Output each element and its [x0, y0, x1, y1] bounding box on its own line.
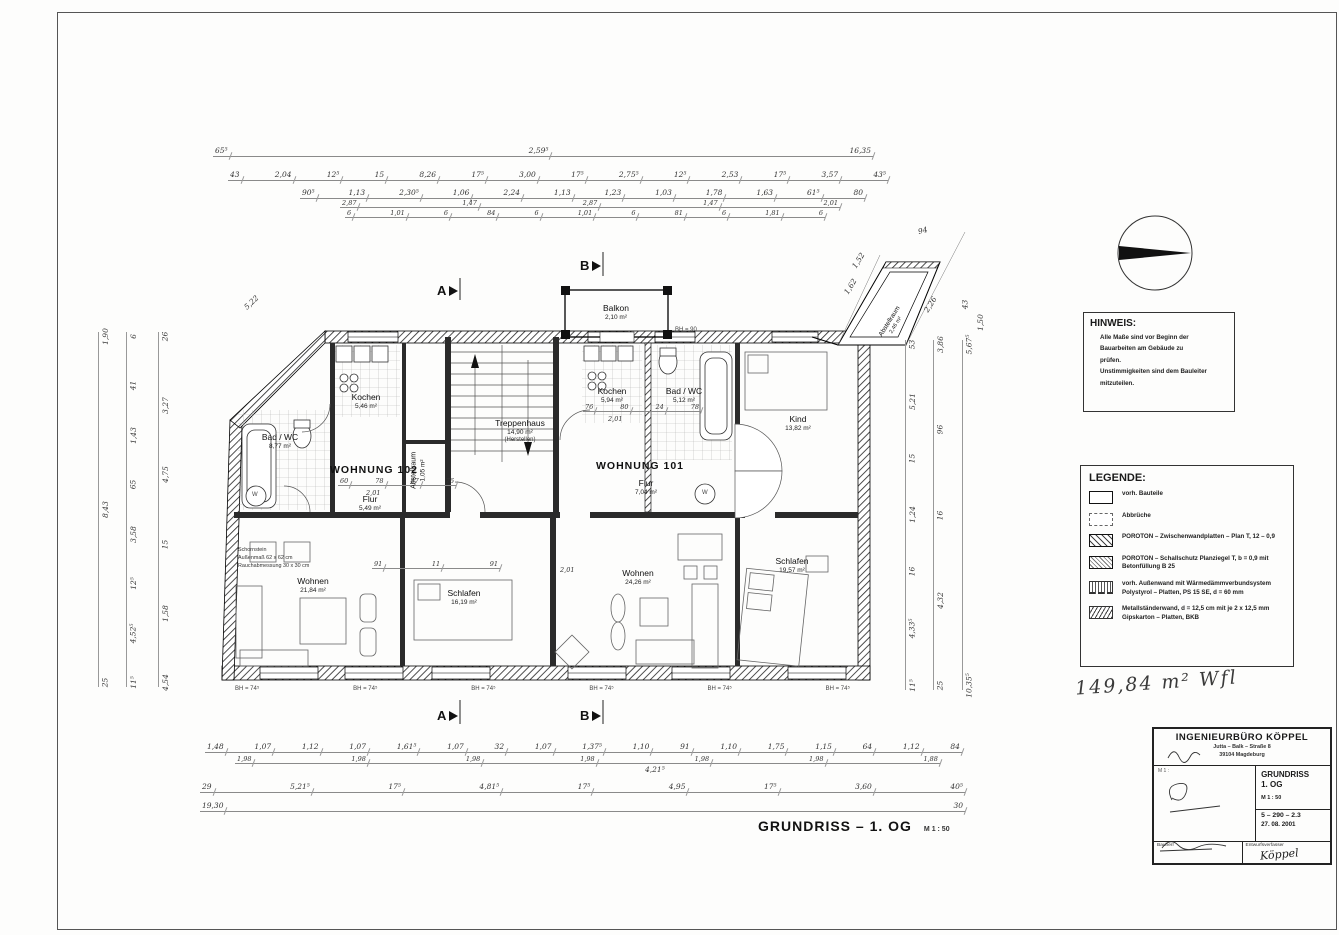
dimension-value: 11⁵ — [908, 679, 917, 692]
dimension-value: 1,01 — [576, 209, 594, 217]
chimney-note: Schornstein Außenmaß 62 x 62 cm Rauchabm… — [238, 546, 330, 570]
washer-label: W — [252, 492, 258, 498]
dimension-value: 1,23 — [603, 188, 624, 198]
dimension-value: 90⁵ — [300, 188, 317, 198]
dimension-value: 1,01 — [388, 209, 406, 217]
dimension-chain: 3,8696164,3225 — [933, 340, 946, 690]
dimension-value: 12⁵ — [129, 577, 138, 590]
dimension-chain: 911191 — [372, 560, 500, 569]
dimension-value: 1,15 — [813, 742, 834, 752]
dimension-value: 6 — [129, 334, 138, 339]
dimension-value: 1,07 — [252, 742, 273, 752]
dimension-value: 1,98 — [349, 755, 367, 763]
room-label-bad101: Bad / WC 5,12 m² — [652, 386, 716, 405]
dimension-value: 91 — [372, 560, 384, 568]
dimension-value: 17⁵ — [576, 782, 593, 792]
dimension-value: 1,61⁵ — [395, 742, 419, 752]
dimension-value: 1,07 — [445, 742, 466, 752]
dimension-value: 25 — [935, 681, 944, 691]
room-label-wohnen101: Wohnen 24,26 m² — [602, 568, 674, 587]
dimension-chain: 90⁵1,132,30⁵1,062,241,131,231,031,781,63… — [300, 188, 865, 199]
firm-name: INGENIEURBÜRO KÖPPEL — [1154, 732, 1330, 743]
washer-label: W — [702, 490, 708, 496]
dimension-value: 5,21⁵ — [288, 782, 312, 792]
dimension-value: 1,48 — [205, 742, 226, 752]
section-lines — [460, 252, 603, 724]
dimension-value: 15 — [907, 453, 916, 463]
dimension-value: 91 — [488, 560, 500, 568]
section-marker-b-bottom: B — [580, 708, 601, 723]
dimension-value: 1,13 — [552, 188, 573, 198]
entwurfsverfasser-signature-cell: Entwurfsverfasser Köppel — [1242, 842, 1331, 864]
dimension-value: 2,01 — [822, 199, 840, 207]
dimension-value: 65⁵ — [213, 146, 230, 156]
dimension-value: 1,98 — [807, 755, 825, 763]
dimension-value: 80 — [851, 188, 865, 198]
dimension-value: 2,87 — [340, 199, 358, 207]
drawing-scale: M 1 : 50 — [1261, 795, 1325, 801]
sill-height-labels: BH = 74⁵BH = 74⁵BH = 74⁵BH = 74⁵BH = 74⁵… — [235, 686, 850, 692]
dimension-value: 2,01 — [608, 415, 622, 423]
dimension-value: 2,30⁵ — [397, 188, 421, 198]
legend-label: POROTON – Schallschutz Planziegel T, b =… — [1122, 555, 1285, 573]
legend-list: vorh. BauteileAbbrüchePOROTON – Zwischen… — [1089, 490, 1285, 623]
dashed-rect-swatch — [1089, 513, 1113, 526]
diagonal-hatch-swatch — [1089, 534, 1113, 547]
dimension-value: 1,24 — [908, 507, 917, 524]
dimension-value: 84 — [948, 742, 962, 752]
dimension-value: BH = 74⁵ — [589, 686, 613, 692]
legend-item: POROTON – Zwischenwandplatten – Plan T, … — [1089, 533, 1285, 547]
dimension-value: 4,33⁵ — [908, 619, 917, 639]
dimension-value: 53 — [907, 340, 916, 350]
dimension-value: BH = 74⁵ — [826, 686, 850, 692]
zigzag-swatch — [1089, 606, 1113, 619]
dimension-value: 16,35 — [848, 146, 873, 156]
dimension-value: 1,03 — [653, 188, 674, 198]
dimension-value: 1,98 — [235, 755, 253, 763]
legend-item: vorh. Bauteile — [1089, 490, 1285, 504]
dimension-value: 17⁵ — [772, 170, 789, 180]
plan-title-text: GRUNDRISS – 1. OG — [758, 818, 912, 834]
dimension-value: 15 — [373, 170, 387, 180]
dimension-chain: 61,0168461,0168161,816 — [345, 209, 825, 218]
hinweis-box: HINWEIS: Alle Maße sind vor Beginn der B… — [1083, 312, 1235, 412]
dimension-value: 84 — [485, 209, 497, 217]
dimension-value: BH = 74⁵ — [708, 686, 732, 692]
dimension-value: 6 — [629, 209, 637, 217]
legend-item: Metallständerwand, d = 12,5 cm mit je 2 … — [1089, 605, 1285, 623]
dimension-value: BH = 74⁵ — [471, 686, 495, 692]
room-label-flur102: Flur 5,49 m² — [342, 494, 398, 513]
dimension-value: 2,24 — [501, 188, 522, 198]
legende-title: LEGENDE: — [1089, 472, 1285, 484]
dimension-value: 1,88 — [921, 755, 939, 763]
room-label-schlafen102: Schlafen 16,19 m² — [428, 588, 500, 607]
dimension-value: 1,07 — [533, 742, 554, 752]
legend-label: Metallständerwand, d = 12,5 cm mit je 2 … — [1122, 605, 1285, 623]
dimension-value: 96 — [935, 425, 944, 435]
dimension-value: 1,06 — [451, 188, 472, 198]
drawing-title: GRUNDRISS 1. OG — [1261, 770, 1325, 791]
drawing-date: 27. 08. 2001 — [1261, 821, 1325, 828]
dimension-value: 6 — [720, 209, 728, 217]
dimension-value: 65 — [128, 480, 137, 490]
legend-item: vorh. Außenwand mit Wärmedämmverbundsyst… — [1089, 580, 1285, 598]
dimension-value: 40⁵ — [948, 782, 965, 792]
dimension-value: 4,52⁵ — [129, 623, 138, 643]
dimension-value: 5,21 — [908, 393, 917, 410]
dimension-value: 1,37⁵ — [580, 742, 604, 752]
dimension-value: 1,63 — [754, 188, 775, 198]
legend-label: POROTON – Zwischenwandplatten – Plan T, … — [1122, 533, 1275, 542]
dimension-chain: 5,67⁵10,35⁵ — [962, 340, 975, 690]
bauherr-signature-cell: Bauherr — [1154, 842, 1242, 864]
dimension-value: 16 — [935, 510, 944, 520]
dimension-value: 43⁵ — [871, 170, 888, 180]
room-label-kind: Kind 13,82 m² — [768, 414, 828, 433]
dimension-value: 1,98 — [693, 755, 711, 763]
dimension-value: 2,01 — [560, 566, 574, 574]
dimension-value: 76 — [444, 477, 456, 485]
dimension-value: 4,32 — [936, 592, 945, 609]
dimension-chain: 535,21151,24164,33⁵11⁵ — [905, 340, 918, 690]
dimension-chain: 263,274,75151,584,54 — [158, 332, 171, 687]
section-arrow-icon — [592, 711, 601, 721]
dimension-chain: 1,981,981,981,981,981,981,88 — [235, 755, 940, 764]
dimension-value: 6 — [442, 209, 450, 217]
dimension-value: 17⁵ — [469, 170, 486, 180]
dimension-value: 1,58 — [161, 605, 170, 622]
dimension-value: BH = 74⁵ — [235, 686, 259, 692]
plan-title: GRUNDRISS – 1. OG M 1 : 50 — [758, 818, 950, 834]
room-label-balkon: Balkon 2,10 m² — [582, 303, 650, 322]
dimension-value: 4,95 — [667, 782, 688, 792]
dimension-value: 3,86 — [936, 336, 945, 353]
stairs — [451, 345, 553, 462]
dimension-value: 5,67⁵ — [965, 335, 974, 355]
dimension-value: 4,54 — [161, 674, 170, 691]
dimension-value: 30 — [951, 801, 965, 811]
dimension-value: 81 — [673, 209, 685, 217]
dimension-value: 3,58 — [129, 526, 138, 543]
sill-height-label: BH = 90 — [675, 327, 697, 333]
dimension-chain: 6411,43653,5812⁵4,52⁵11⁵ — [126, 332, 139, 687]
dimension-value: 17⁵ — [386, 782, 403, 792]
dimension-value: 6 — [345, 209, 353, 217]
dimension-value: 1,78 — [704, 188, 725, 198]
dimension-value: 1,50 — [976, 314, 985, 331]
section-marker-a-top: A — [437, 283, 458, 298]
title-block-notes-cell: M 1 : — [1154, 766, 1256, 841]
dimension-value: 1,90 — [101, 328, 110, 345]
insulation-swatch — [1089, 581, 1113, 594]
solid-rect-swatch — [1089, 491, 1113, 504]
dimension-value: 11⁵ — [129, 676, 138, 689]
dimension-value: 64 — [861, 742, 875, 752]
dimension-value: 26 — [160, 332, 169, 342]
dimension-value: 43 — [960, 300, 969, 310]
section-arrow-icon — [449, 286, 458, 296]
dimension-value: 61⁵ — [805, 188, 822, 198]
section-arrow-icon — [449, 711, 458, 721]
dimension-value: 78 — [373, 477, 385, 485]
north-arrow-icon — [1118, 216, 1192, 290]
dimension-value: 17⁵ — [762, 782, 779, 792]
apartment-name-101: WOHNUNG 101 — [596, 460, 684, 472]
dimension-value: 2,87 — [581, 199, 599, 207]
room-label-treppenhaus: Treppenhaus 14,90 m² (Herstellen) — [478, 418, 562, 444]
dimension-value: 25 — [100, 678, 109, 688]
dimension-value: 41 — [128, 381, 137, 391]
section-arrow-icon — [592, 261, 601, 271]
legende-box: LEGENDE: vorh. BauteileAbbrüchePOROTON –… — [1080, 465, 1294, 667]
plan-scale-text: M 1 : 50 — [924, 826, 950, 833]
dimension-value: 1,10 — [718, 742, 739, 752]
firm-address: Jutta – Balk – Straße 8 39104 Magdeburg — [1154, 743, 1330, 759]
dimension-value: 8,26 — [417, 170, 438, 180]
dimension-chain: 2,871,472,871,472,01 — [340, 199, 840, 208]
dimension-value: 1,12 — [901, 742, 922, 752]
dimension-value: 6 — [817, 209, 825, 217]
dimension-value: 3,60 — [853, 782, 874, 792]
dimension-value: 1,13 — [346, 188, 367, 198]
dimension-value: 1,47 — [701, 199, 719, 207]
dimension-value: 2,59⁵ — [527, 146, 551, 156]
dimension-value: 1,43 — [129, 427, 138, 444]
dimension-value: 43 — [228, 170, 242, 180]
apartment-name-102: WOHNUNG 102 — [330, 464, 418, 476]
title-block: INGENIEURBÜRO KÖPPEL Jutta – Balk – Stra… — [1152, 727, 1332, 865]
room-label-wohnen102: Wohnen 21,84 m² — [278, 576, 348, 595]
dimension-value: 60 — [338, 477, 350, 485]
dimension-value: 3,57 — [819, 170, 840, 180]
dimension-value: 15 — [160, 539, 169, 549]
dimension-value: 2,04 — [273, 170, 294, 180]
dimension-value: 1,07 — [347, 742, 368, 752]
signature: Köppel — [1259, 846, 1299, 862]
legend-item: Abbrüche — [1089, 512, 1285, 526]
section-marker-b-top: B — [580, 258, 601, 273]
dimension-chain: 295,21⁵17⁵4,81⁵17⁵4,9517⁵3,6040⁵ — [200, 782, 965, 793]
dimension-value: 12⁵ — [325, 170, 342, 180]
room-label-flur101: Flur 7,04 m² — [616, 478, 676, 497]
dimension-value: 4,21⁵ — [645, 765, 665, 774]
dimension-chain: 432,0412⁵158,2617⁵3,0017⁵2,75⁵12⁵2,5317⁵… — [228, 170, 888, 181]
dimension-chain: 65⁵2,59⁵16,35 — [213, 146, 873, 157]
dimension-value: 1,75 — [766, 742, 787, 752]
dimension-value: 2,53 — [720, 170, 741, 180]
dimension-chain: 19,3030 — [200, 801, 965, 812]
drawing-number: 5 – 290 – 2.3 — [1261, 812, 1325, 819]
dimension-value: BH = 74⁵ — [353, 686, 377, 692]
room-label-bad102: Bad / WC 8,77 m² — [248, 432, 312, 451]
dimension-value: 1,47 — [460, 199, 478, 207]
dimension-value: 1,10 — [631, 742, 652, 752]
dimension-value: 19,30 — [200, 801, 225, 811]
dimension-value: 1,98 — [464, 755, 482, 763]
section-marker-a-bottom: A — [437, 708, 458, 723]
legend-label: vorh. Bauteile — [1122, 490, 1163, 499]
dimension-value: 6 — [532, 209, 540, 217]
dimension-value: 2,75⁵ — [617, 170, 641, 180]
dimension-value: 1,81 — [763, 209, 781, 217]
dimension-value: 17⁵ — [569, 170, 586, 180]
dimension-value: 4,75 — [161, 467, 170, 484]
dimension-value: 1,12 — [300, 742, 321, 752]
dimension-value: 12⁵ — [672, 170, 689, 180]
room-label-kochen102: Kochen 5,46 m² — [338, 392, 394, 411]
dimension-value: 29 — [200, 782, 214, 792]
dimension-value: 11 — [430, 560, 442, 568]
dimension-chain: 1,908,4325 — [98, 332, 111, 687]
dense-hatch-swatch — [1089, 556, 1113, 569]
legend-item: POROTON – Schallschutz Planziegel T, b =… — [1089, 555, 1285, 573]
dimension-value: 16 — [907, 567, 916, 577]
hinweis-title: HINWEIS: — [1090, 318, 1228, 329]
dimension-value: 3,00 — [517, 170, 538, 180]
room-label-schlafen101: Schlafen 19,57 m² — [756, 556, 828, 575]
dimension-value: 1,98 — [578, 755, 596, 763]
dimension-value: 8,43 — [101, 501, 110, 518]
drawing-sheet: 65⁵2,59⁵16,35 432,0412⁵158,2617⁵3,0017⁵2… — [0, 0, 1339, 935]
room-label-kochen101: Kochen 5,94 m² — [584, 386, 640, 405]
dimension-value: 4,81⁵ — [477, 782, 501, 792]
dimension-chain: 1,481,071,121,071,61⁵1,07321,071,37⁵1,10… — [205, 742, 962, 753]
dimension-value: 91 — [678, 742, 692, 752]
legend-label: Abbrüche — [1122, 512, 1151, 521]
legend-label: vorh. Außenwand mit Wärmedämmverbundsyst… — [1122, 580, 1285, 598]
dimension-value: 3,27 — [161, 397, 170, 414]
dimension-value: 10,35⁵ — [965, 673, 974, 697]
dimension-chain: 60788776 — [338, 477, 456, 486]
dimension-value: 32 — [493, 742, 507, 752]
